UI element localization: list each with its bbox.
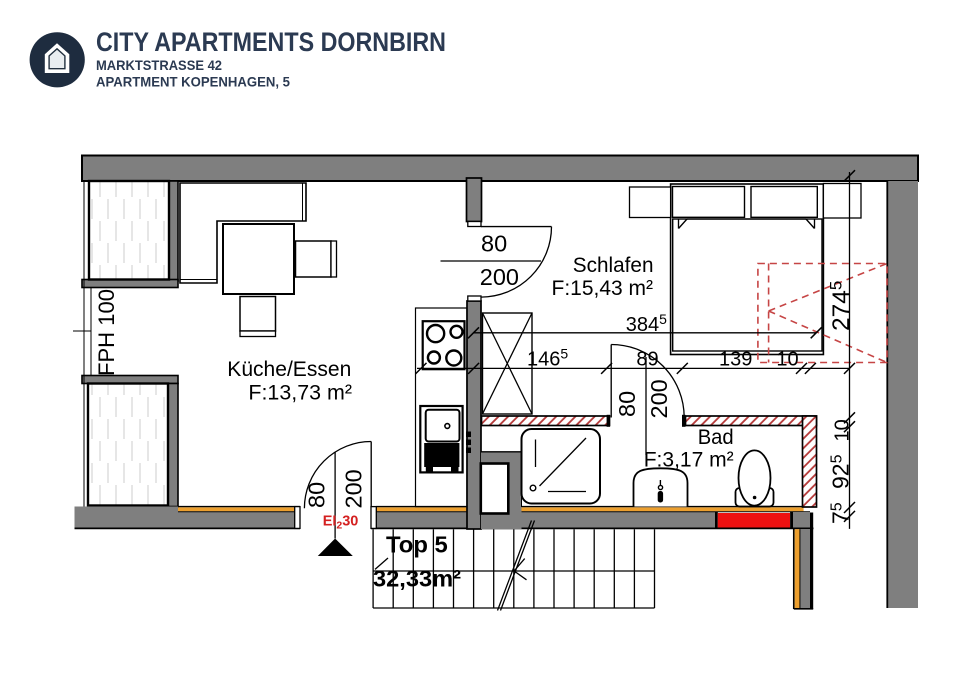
- svg-text:F:13,73 m²: F:13,73 m²: [248, 382, 352, 405]
- svg-text:CITY APARTMENTS DORNBIRN: CITY APARTMENTS DORNBIRN: [96, 27, 446, 57]
- svg-text:F:15,43 m²: F:15,43 m²: [552, 277, 654, 300]
- svg-text:200: 200: [341, 469, 367, 508]
- svg-text:32,33m²: 32,33m²: [373, 566, 461, 592]
- svg-text:FPH 100: FPH 100: [94, 289, 119, 376]
- svg-text:Schlafen: Schlafen: [573, 254, 654, 277]
- svg-text:10: 10: [776, 348, 798, 370]
- svg-text:Küche/Essen: Küche/Essen: [227, 358, 351, 381]
- svg-text:80: 80: [481, 231, 507, 257]
- svg-text:89: 89: [636, 348, 658, 370]
- svg-text:APARTMENT KOPENHAGEN, 5: APARTMENT KOPENHAGEN, 5: [96, 74, 290, 89]
- svg-text:Bad: Bad: [698, 426, 734, 449]
- svg-text:80: 80: [304, 482, 330, 508]
- svg-text:139: 139: [719, 348, 752, 370]
- svg-text:200: 200: [646, 379, 672, 418]
- svg-text:80: 80: [614, 391, 640, 417]
- svg-text:10: 10: [832, 419, 854, 441]
- svg-text:Top 5: Top 5: [386, 532, 448, 558]
- svg-text:MARKTSTRASSE 42: MARKTSTRASSE 42: [96, 58, 222, 73]
- svg-text:200: 200: [480, 264, 519, 290]
